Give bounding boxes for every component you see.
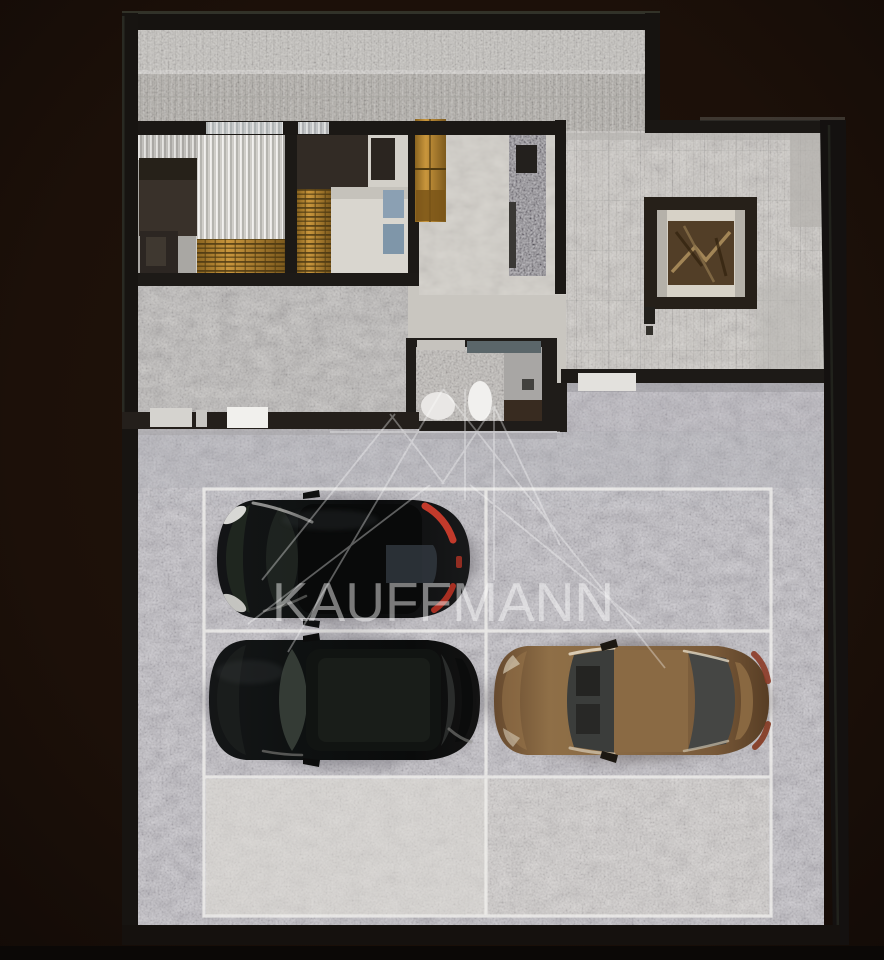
svg-text:KAUFFMANN: KAUFFMANN [272,571,614,633]
